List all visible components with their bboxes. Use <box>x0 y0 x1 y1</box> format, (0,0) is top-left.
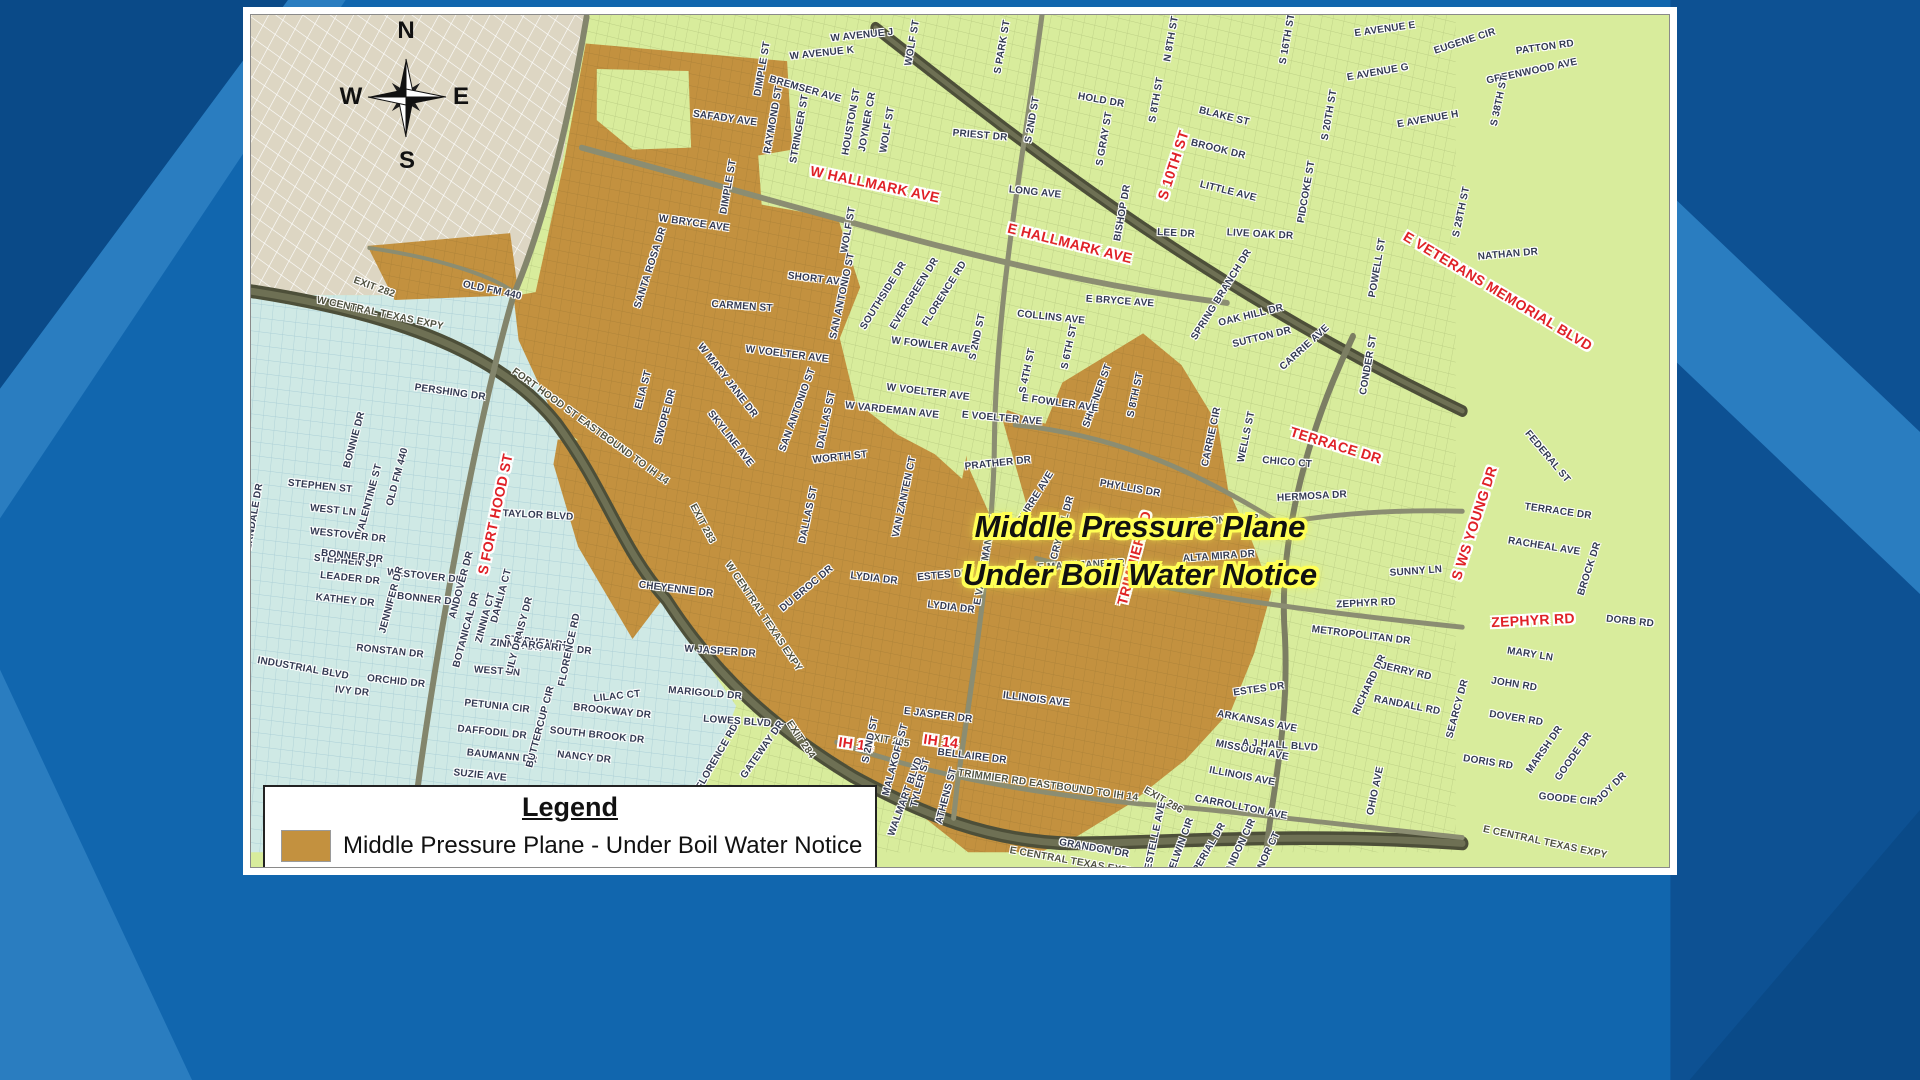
street-label: NANCY DR <box>557 750 612 766</box>
street-label: SWOPE DR <box>654 389 678 446</box>
street-label: JOHN RD <box>1490 676 1537 693</box>
street-label: SHOFNER ST <box>1082 363 1114 429</box>
street-label: S 8TH ST <box>1126 372 1145 419</box>
street-label: PHYLLIS DR <box>1099 479 1161 500</box>
street-label: DAFFODIL DR <box>457 724 527 741</box>
street-label: DALLAS ST <box>816 391 838 450</box>
street-label: NATHAN DR <box>1477 247 1538 262</box>
street-label: LEADER DR <box>320 571 381 587</box>
legend-row: Middle Pressure Plane - Under Boil Water… <box>281 830 875 862</box>
compass-star-icon <box>351 35 461 165</box>
street-label: DU BROC DR <box>779 564 836 614</box>
street-label: MANOR CT <box>1250 831 1283 868</box>
highway-label: ZEPHYR RD <box>1491 611 1575 629</box>
street-label: ARKANSAS AVE <box>1216 709 1298 734</box>
street-label: OHIO AVE <box>1366 766 1386 816</box>
street-label: W VOELTER AVE <box>745 345 829 365</box>
street-label: DORIS RD <box>1462 754 1513 772</box>
street-label: VALENTINE ST <box>356 463 385 537</box>
street-label: ATHENS ST <box>935 767 960 825</box>
street-label: GOODE DR <box>1554 731 1594 783</box>
legend-color-swatch <box>281 830 331 862</box>
street-label: WOLF ST <box>879 106 897 153</box>
street-label: RANDALL RD <box>1373 695 1441 718</box>
street-label: INDUSTRIAL BLVD <box>257 656 350 682</box>
compass-rose: N W E S <box>351 35 461 165</box>
street-label: STRINGER ST <box>789 94 811 164</box>
street-label: FERNDALE DR <box>250 483 265 557</box>
street-label: HOLD DR <box>1077 92 1125 110</box>
street-label: SOUTH BROOK DR <box>549 726 645 746</box>
street-label: ILLINOIS AVE <box>1002 691 1070 709</box>
street-label: W CENTRAL TEXAS EXPY <box>316 296 445 333</box>
street-label: N 8TH ST <box>1163 15 1181 62</box>
legend-title: Legend <box>265 792 875 823</box>
street-label: LYDIA DR <box>927 600 975 616</box>
street-label: EUGENE CIR <box>1433 27 1497 56</box>
street-label: E AVENUE G <box>1346 63 1409 84</box>
street-label: S GRAY ST <box>1095 111 1114 167</box>
street-label: JOY DR <box>1595 771 1629 805</box>
street-label: LILAC CT <box>593 690 641 705</box>
street-label: W VOELTER AVE <box>886 383 970 403</box>
street-label: SEARCY DR <box>1445 678 1470 739</box>
street-label: CHEYENNE DR <box>638 580 714 599</box>
street-label: CARRIE CIR <box>1201 406 1223 467</box>
street-label: PETUNIA CIR <box>464 699 530 716</box>
street-label: EXIT 282 <box>352 276 396 300</box>
street-label: CHICO CT <box>1262 456 1313 470</box>
street-label: ORCHID DR <box>366 674 425 690</box>
street-label: S 8TH ST <box>1148 77 1166 124</box>
street-label: ELIA ST <box>634 370 654 411</box>
street-label: MARY LN <box>1506 646 1553 663</box>
street-label: WELLS ST <box>1237 410 1258 463</box>
street-label: JOYNER CR <box>858 92 878 153</box>
street-label: S 20TH ST <box>1321 89 1340 141</box>
street-label: CARMEN ST <box>711 300 773 314</box>
street-label: E AVENUE E <box>1354 21 1416 39</box>
street-label: TERRACE DR <box>1524 502 1592 521</box>
street-label: FLORENCE RD <box>695 722 741 791</box>
street-label: RONSTAN DR <box>356 643 425 660</box>
street-label: E VOELTER AVE <box>961 410 1042 427</box>
street-label: DIMPLE ST <box>719 159 738 215</box>
street-label: STEPHEN ST <box>287 479 352 496</box>
street-label: E JASPER DR <box>903 707 973 725</box>
street-label: E CENTRAL TEXAS EXPY <box>1482 825 1608 861</box>
street-label: HERMOSA DR <box>1277 490 1347 504</box>
highway-label: S WS YOUNG DR <box>1449 464 1499 581</box>
street-label: LONG AVE <box>1008 185 1061 200</box>
highway-label: W HALLMARK AVE <box>809 163 941 204</box>
street-label: BROOKWAY DR <box>573 703 652 721</box>
boil-water-notice-map: EXIT 282OLD FM 440W CENTRAL TEXAS EXPYFO… <box>243 7 1677 875</box>
boil-water-notice-callout: Middle Pressure Plane Under Boil Water N… <box>880 503 1400 599</box>
street-label: S 4TH ST <box>1018 348 1037 395</box>
street-label: CONDER ST <box>1359 334 1379 396</box>
notice-line-1: Middle Pressure Plane <box>880 503 1400 551</box>
legend-item-label: Middle Pressure Plane - Under Boil Water… <box>343 832 862 860</box>
map-content: EXIT 282OLD FM 440W CENTRAL TEXAS EXPYFO… <box>250 14 1670 868</box>
street-label: E BRYCE AVE <box>1085 295 1154 310</box>
street-label: BELLAIRE DR <box>937 748 1007 766</box>
street-label: PIDCOKE ST <box>1297 160 1318 224</box>
street-label: ESTES DR <box>1233 681 1286 698</box>
compass-east-label: E <box>453 83 469 111</box>
street-label: BLAKE ST <box>1198 106 1250 128</box>
street-label: LITTLE AVE <box>1199 180 1258 204</box>
street-label: LEE DR <box>1157 228 1195 240</box>
street-label: S 6TH ST <box>1060 324 1079 371</box>
street-label: BISHOP DR <box>1113 184 1133 242</box>
street-label: DOVER RD <box>1488 710 1543 728</box>
street-label: DIMPLE ST <box>753 41 772 97</box>
street-label: WESTOVER DR <box>309 527 386 545</box>
street-label: WOLF ST <box>840 206 858 253</box>
street-label: W AVENUE K <box>789 46 854 63</box>
street-label: W BRYCE AVE <box>658 214 730 234</box>
street-label: W JASPER DR <box>684 645 756 660</box>
street-label: ILLINOIS AVE <box>1208 766 1276 789</box>
street-label: SKYLINE AVE <box>705 409 755 469</box>
street-label: S 28TH ST <box>1452 186 1472 238</box>
street-label: S 2ND ST <box>1024 96 1042 144</box>
street-label: SAFADY AVE <box>692 110 757 129</box>
street-label: OAK HILL DR <box>1218 303 1285 329</box>
street-label: GOODE CIR <box>1538 792 1598 808</box>
street-label: CARROLLTON AVE <box>1194 794 1288 822</box>
street-label: MARIGOLD DR <box>668 686 742 702</box>
street-label: S 2ND ST <box>968 313 987 361</box>
highway-label: S 10TH ST <box>1155 129 1191 202</box>
street-label: W VARDEMAN AVE <box>845 401 940 421</box>
street-label: OLD FM 440 <box>385 447 410 507</box>
street-label: S 16TH ST <box>1279 14 1298 65</box>
street-label: DALLAS ST <box>798 486 820 545</box>
compass-north-label: N <box>397 17 414 45</box>
street-label: PRATHER DR <box>964 456 1032 473</box>
street-label: PRIEST DR <box>952 129 1008 144</box>
street-label: BROOK DR <box>1190 138 1247 161</box>
street-label: BONNIE DR <box>343 411 368 470</box>
street-label: JERRY RD <box>1380 661 1433 682</box>
street-label: E FOWLER AVE <box>1021 394 1099 415</box>
street-label: SUTTON DR <box>1232 326 1293 350</box>
street-label: PERSHING DR <box>414 383 486 403</box>
street-label: SAN ANTONIO ST <box>778 367 817 453</box>
street-label: WEST LN <box>309 504 356 519</box>
street-label: POWELL ST <box>1368 238 1388 299</box>
street-label: TRIMMIER RD EASTBOUND TO IH 14 <box>957 768 1139 803</box>
street-label: SANTA ROSA DR <box>633 226 669 309</box>
street-label: FEDERAL ST <box>1522 429 1571 485</box>
street-label: EXIT 283 <box>687 503 716 546</box>
street-label: LIVE OAK DR <box>1226 228 1293 241</box>
street-label: S PARK ST <box>993 19 1012 74</box>
street-label: DELWIN CIR <box>1166 817 1196 868</box>
street-label: ESTELLE AVE <box>1144 801 1168 868</box>
street-label: TAYLOR BLVD <box>502 509 573 523</box>
street-labels: EXIT 282OLD FM 440W CENTRAL TEXAS EXPYFO… <box>251 15 1669 867</box>
compass-west-label: W <box>340 83 363 111</box>
street-label: ZEPHYR RD <box>1336 597 1396 610</box>
street-label: RAYMOND ST <box>763 85 785 154</box>
street-label: SAN ANTONIO ST <box>829 252 857 340</box>
street-label: DORB RD <box>1606 615 1655 630</box>
street-label: METROPOLITAN DR <box>1311 625 1411 647</box>
notice-line-2: Under Boil Water Notice <box>880 551 1400 599</box>
street-label: OLD FM 440 <box>462 280 523 302</box>
street-label: W FOWLER AVE <box>891 336 972 356</box>
street-label: EXIT 284 <box>784 719 817 760</box>
street-label: MARGARITA DR <box>512 639 592 657</box>
legend-box: Legend Middle Pressure Plane - Under Boi… <box>263 785 877 868</box>
street-label: IVY DR <box>334 685 369 699</box>
street-label: BROCK DR <box>1577 541 1604 597</box>
compass-south-label: S <box>399 147 415 175</box>
street-label: PATTON RD <box>1515 39 1574 57</box>
highway-label: E VETERANS MEMORIAL BLVD <box>1401 229 1595 353</box>
street-label: W AVENUE J <box>830 28 894 45</box>
street-label: E AVENUE H <box>1397 110 1460 131</box>
street-label: RACHEAL AVE <box>1507 536 1581 557</box>
street-label: WORTH ST <box>812 450 868 466</box>
street-label: WOLF ST <box>904 19 922 66</box>
street-label: KATHEY DR <box>315 593 375 609</box>
street-label: SUZIE AVE <box>453 768 507 784</box>
